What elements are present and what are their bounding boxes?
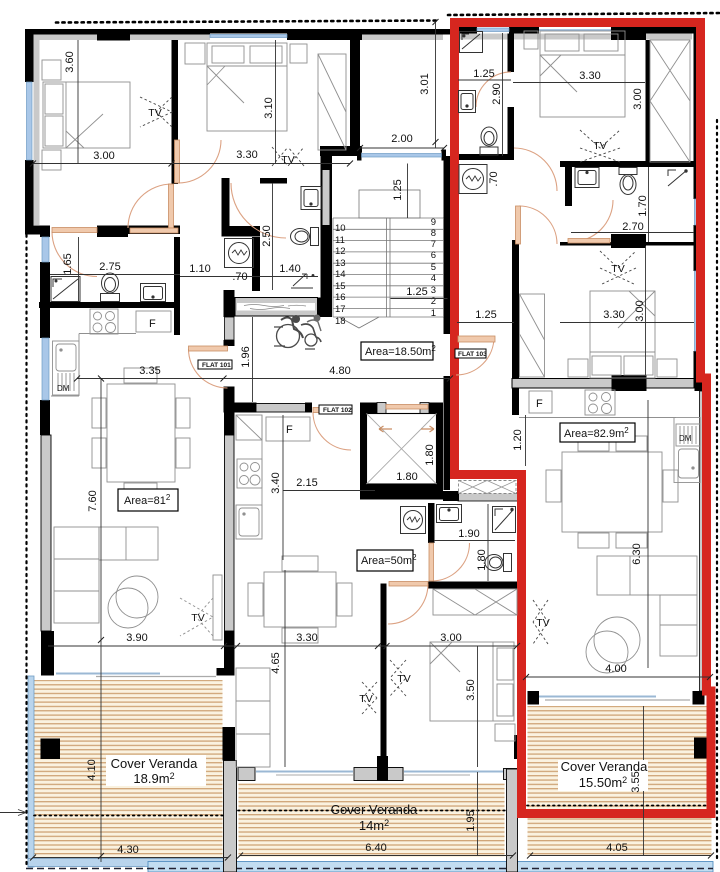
svg-text:1.95: 1.95 xyxy=(465,810,477,831)
svg-text:1.25: 1.25 xyxy=(473,68,494,80)
svg-text:7.60: 7.60 xyxy=(87,490,99,511)
svg-text:3.30: 3.30 xyxy=(236,149,257,161)
svg-text:6: 6 xyxy=(431,250,436,261)
svg-text:15.50m2: 15.50m2 xyxy=(579,775,627,790)
svg-text:1.96: 1.96 xyxy=(240,346,252,367)
svg-text:3.40: 3.40 xyxy=(270,472,282,493)
svg-text:FLAT 103: FLAT 103 xyxy=(458,351,487,358)
svg-text:6.40: 6.40 xyxy=(365,842,386,854)
svg-text:Area=812: Area=812 xyxy=(124,493,171,507)
svg-text:1.40: 1.40 xyxy=(279,263,300,275)
svg-text:18.9m2: 18.9m2 xyxy=(133,771,174,786)
svg-text:11: 11 xyxy=(335,235,345,246)
svg-text:4.30: 4.30 xyxy=(117,844,138,856)
svg-text:1.10: 1.10 xyxy=(189,263,210,275)
svg-text:1.20: 1.20 xyxy=(512,429,524,450)
svg-text:TV: TV xyxy=(536,617,549,629)
svg-text:1: 1 xyxy=(431,308,436,319)
svg-text:4.65: 4.65 xyxy=(270,652,282,673)
svg-text:3: 3 xyxy=(431,285,436,296)
svg-text:4.10: 4.10 xyxy=(86,759,98,780)
svg-text:3.00: 3.00 xyxy=(93,150,114,162)
svg-text:2: 2 xyxy=(431,296,436,307)
svg-text:3.55: 3.55 xyxy=(630,771,642,792)
svg-text:TV: TV xyxy=(611,263,624,275)
svg-text:DM: DM xyxy=(57,384,70,393)
svg-text:3.30: 3.30 xyxy=(579,70,600,82)
svg-text:1.80: 1.80 xyxy=(424,444,436,465)
svg-text:8: 8 xyxy=(431,228,436,239)
svg-text:1.70: 1.70 xyxy=(637,195,649,216)
svg-text:2.50: 2.50 xyxy=(261,225,273,246)
svg-text:2.75: 2.75 xyxy=(99,261,120,273)
svg-text:.70: .70 xyxy=(488,171,500,186)
svg-text:9: 9 xyxy=(431,217,436,228)
svg-text:5: 5 xyxy=(431,262,436,273)
svg-text:F: F xyxy=(149,318,156,330)
svg-text:TV: TV xyxy=(191,612,204,624)
svg-text:FLAT 101: FLAT 101 xyxy=(202,362,231,369)
svg-text:2.90: 2.90 xyxy=(491,83,503,104)
svg-text:13: 13 xyxy=(335,258,346,269)
svg-text:TV: TV xyxy=(281,154,294,166)
svg-text:1.25: 1.25 xyxy=(475,309,496,321)
svg-text:3.30: 3.30 xyxy=(603,309,624,321)
svg-text:3.00: 3.00 xyxy=(440,632,461,644)
svg-text:6.30: 6.30 xyxy=(631,543,643,564)
svg-text:3.60: 3.60 xyxy=(64,51,76,72)
svg-text:TV: TV xyxy=(148,107,161,119)
svg-text:15: 15 xyxy=(335,281,346,292)
svg-text:14: 14 xyxy=(335,269,346,280)
svg-text:1.80: 1.80 xyxy=(396,471,417,483)
svg-text:4: 4 xyxy=(431,273,436,284)
svg-text:3.90: 3.90 xyxy=(126,632,147,644)
svg-text:12: 12 xyxy=(335,246,346,257)
svg-text:TV: TV xyxy=(359,693,372,705)
svg-text:10: 10 xyxy=(335,223,346,234)
svg-text:18: 18 xyxy=(335,316,346,327)
svg-text:1.25: 1.25 xyxy=(406,286,427,298)
svg-text:TV: TV xyxy=(593,140,606,152)
svg-text:16: 16 xyxy=(335,292,346,303)
svg-text:3.01: 3.01 xyxy=(419,73,431,94)
svg-text:3.10: 3.10 xyxy=(263,97,275,118)
svg-text:4.05: 4.05 xyxy=(606,842,627,854)
svg-text:TV: TV xyxy=(397,673,410,685)
svg-text:Cover Veranda: Cover Veranda xyxy=(111,756,198,771)
svg-text:1.25: 1.25 xyxy=(392,179,404,200)
svg-text:1.90: 1.90 xyxy=(458,528,479,540)
svg-text:Area=82.9m2: Area=82.9m2 xyxy=(564,426,629,440)
svg-text:3.50: 3.50 xyxy=(465,679,477,700)
svg-text:DM: DM xyxy=(679,434,692,443)
svg-text:1.80: 1.80 xyxy=(476,549,488,570)
svg-text:3.00: 3.00 xyxy=(632,88,644,109)
svg-text:F: F xyxy=(286,424,293,436)
svg-text:3.35: 3.35 xyxy=(139,365,160,377)
svg-text:3.30: 3.30 xyxy=(296,632,317,644)
svg-text:2.15: 2.15 xyxy=(296,477,317,489)
svg-text:1.65: 1.65 xyxy=(62,253,74,274)
svg-text:F: F xyxy=(536,398,543,410)
svg-text:FLAT 102: FLAT 102 xyxy=(323,407,352,414)
svg-text:Area=50m2: Area=50m2 xyxy=(361,553,417,567)
svg-text:4.80: 4.80 xyxy=(329,365,350,377)
svg-text:17: 17 xyxy=(335,304,346,315)
svg-text:2.00: 2.00 xyxy=(391,133,412,145)
svg-text:.70: .70 xyxy=(232,271,247,283)
svg-text:4.00: 4.00 xyxy=(605,663,626,675)
svg-text:2.70: 2.70 xyxy=(622,221,643,233)
svg-text:3.00: 3.00 xyxy=(634,300,646,321)
svg-text:Cover Veranda: Cover Veranda xyxy=(331,802,418,817)
svg-text:Area=18.50m2: Area=18.50m2 xyxy=(365,344,436,358)
svg-text:7: 7 xyxy=(431,239,436,250)
